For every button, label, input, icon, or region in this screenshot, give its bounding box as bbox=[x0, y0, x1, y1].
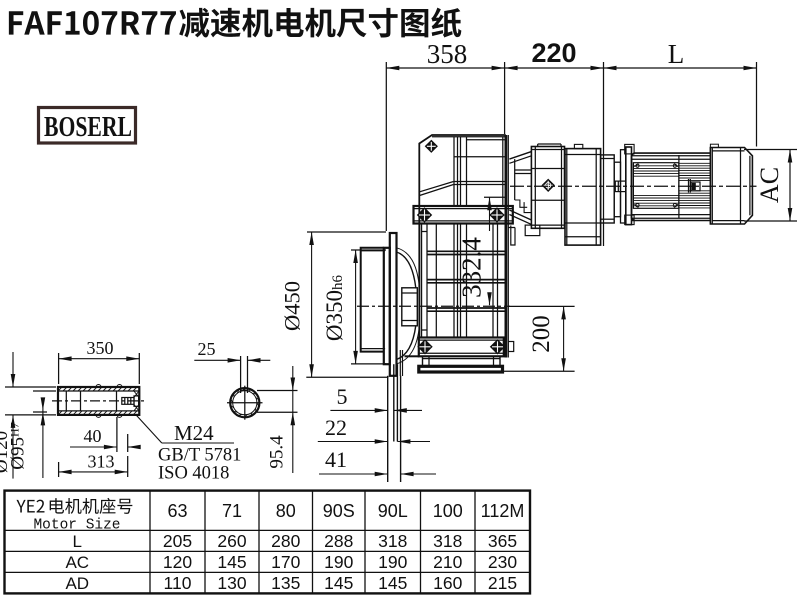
svg-text:ISO 4018: ISO 4018 bbox=[158, 464, 229, 484]
svg-text:41: 41 bbox=[325, 447, 347, 472]
svg-text:63: 63 bbox=[167, 501, 187, 521]
svg-text:205: 205 bbox=[163, 531, 192, 551]
svg-text:230: 230 bbox=[488, 552, 517, 572]
svg-text:130: 130 bbox=[217, 573, 246, 593]
svg-text:112M: 112M bbox=[481, 501, 525, 521]
svg-text:210: 210 bbox=[433, 552, 462, 572]
svg-text:135: 135 bbox=[271, 573, 300, 593]
svg-text:100: 100 bbox=[433, 501, 463, 521]
svg-text:200: 200 bbox=[528, 315, 555, 353]
svg-text:215: 215 bbox=[488, 573, 517, 593]
svg-text:160: 160 bbox=[433, 573, 462, 593]
svg-text:AC: AC bbox=[755, 167, 784, 203]
svg-text:220: 220 bbox=[531, 38, 576, 68]
svg-text:318: 318 bbox=[378, 531, 407, 551]
svg-text:280: 280 bbox=[271, 531, 300, 551]
svg-text:AD: AD bbox=[65, 574, 89, 593]
svg-text:358: 358 bbox=[427, 39, 468, 69]
svg-text:80: 80 bbox=[276, 501, 296, 521]
svg-text:BOSERL: BOSERL bbox=[44, 112, 132, 143]
svg-text:332.4: 332.4 bbox=[457, 237, 487, 298]
svg-text:5: 5 bbox=[337, 384, 348, 409]
svg-text:145: 145 bbox=[378, 573, 407, 593]
svg-text:170: 170 bbox=[271, 552, 300, 572]
svg-text:318: 318 bbox=[433, 531, 462, 551]
svg-text:M24: M24 bbox=[174, 421, 214, 445]
svg-text:95.4: 95.4 bbox=[267, 435, 288, 469]
svg-text:313: 313 bbox=[88, 452, 115, 472]
svg-text:288: 288 bbox=[324, 531, 353, 551]
svg-text:190: 190 bbox=[378, 552, 407, 572]
svg-text:71: 71 bbox=[222, 501, 242, 521]
svg-text:40: 40 bbox=[84, 426, 102, 446]
svg-text:Motor Size: Motor Size bbox=[33, 517, 120, 533]
svg-text:145: 145 bbox=[324, 573, 353, 593]
svg-text:110: 110 bbox=[164, 573, 192, 593]
svg-text:260: 260 bbox=[217, 531, 246, 551]
svg-text:L: L bbox=[73, 532, 82, 551]
svg-text:AC: AC bbox=[65, 553, 89, 572]
svg-text:GB/T 5781: GB/T 5781 bbox=[158, 446, 241, 466]
svg-text:22: 22 bbox=[325, 415, 347, 440]
svg-text:350: 350 bbox=[87, 338, 114, 358]
svg-text:365: 365 bbox=[488, 531, 517, 551]
svg-text:120: 120 bbox=[163, 552, 192, 572]
svg-text:145: 145 bbox=[217, 552, 246, 572]
svg-text:190: 190 bbox=[324, 552, 353, 572]
svg-text:L: L bbox=[668, 39, 685, 69]
svg-text:25: 25 bbox=[198, 339, 216, 359]
svg-text:Ø450: Ø450 bbox=[280, 281, 305, 331]
svg-text:90L: 90L bbox=[378, 501, 408, 521]
svg-text:90S: 90S bbox=[323, 501, 355, 521]
